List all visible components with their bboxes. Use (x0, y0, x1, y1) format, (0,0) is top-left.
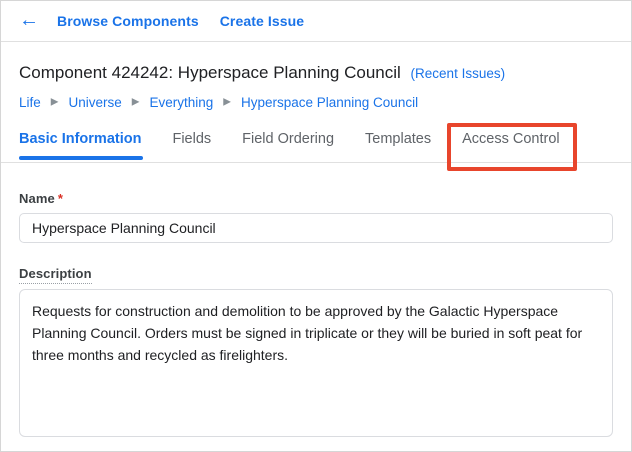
tab-field-ordering-label: Field Ordering (242, 131, 334, 147)
breadcrumb-item-life[interactable]: Life (19, 95, 41, 110)
name-label-text: Name (19, 191, 55, 206)
description-field-label: Description (19, 266, 613, 284)
basic-information-form: Name* Description Requests for construct… (1, 191, 631, 437)
page-header: Component 424242: Hyperspace Planning Co… (1, 42, 631, 110)
browse-components-link[interactable]: Browse Components (57, 13, 199, 29)
tab-access-control-label: Access Control (462, 131, 560, 147)
description-textarea[interactable]: Requests for construction and demolition… (19, 289, 613, 437)
page-title: Component 424242: Hyperspace Planning Co… (19, 63, 401, 82)
breadcrumb-item-hyperspace-planning-council[interactable]: Hyperspace Planning Council (241, 95, 418, 110)
chevron-right-icon: ▶ (132, 97, 140, 107)
tab-fields-label: Fields (172, 131, 211, 147)
active-tab-underline (19, 156, 143, 160)
tab-templates-label: Templates (365, 131, 431, 147)
description-label-text: Description (19, 266, 92, 284)
recent-issues-link[interactable]: (Recent Issues) (411, 66, 506, 81)
required-asterisk: * (58, 191, 63, 206)
back-arrow-icon[interactable]: ← (19, 10, 45, 30)
tab-bar: Basic Information Fields Field Ordering … (1, 116, 631, 163)
name-input[interactable] (19, 213, 613, 243)
app-window: ← Browse Components Create Issue Compone… (0, 0, 632, 452)
chevron-right-icon: ▶ (51, 97, 59, 107)
tab-basic-information-label: Basic Information (19, 131, 141, 147)
top-navigation-bar: ← Browse Components Create Issue (1, 1, 631, 42)
title-row: Component 424242: Hyperspace Planning Co… (19, 61, 613, 86)
name-field-label: Name* (19, 191, 613, 206)
breadcrumb-item-everything[interactable]: Everything (149, 95, 213, 110)
tab-basic-information[interactable]: Basic Information (19, 116, 141, 162)
tab-access-control[interactable]: Access Control (462, 116, 560, 162)
tab-fields[interactable]: Fields (172, 116, 211, 162)
tab-templates[interactable]: Templates (365, 116, 431, 162)
create-issue-link[interactable]: Create Issue (220, 13, 304, 29)
tab-field-ordering[interactable]: Field Ordering (242, 116, 334, 162)
chevron-right-icon: ▶ (223, 97, 231, 107)
breadcrumb: Life ▶ Universe ▶ Everything ▶ Hyperspac… (19, 95, 613, 110)
breadcrumb-item-universe[interactable]: Universe (68, 95, 121, 110)
